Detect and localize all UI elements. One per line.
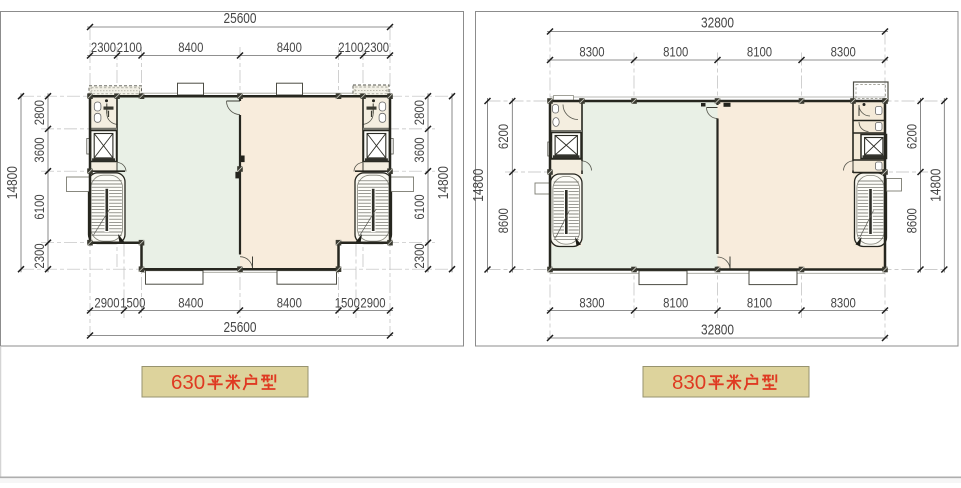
svg-text:8100: 8100	[663, 295, 688, 311]
svg-text:2900: 2900	[360, 295, 385, 311]
svg-text:8400: 8400	[277, 39, 302, 55]
svg-text:2300: 2300	[91, 39, 116, 55]
svg-text:1500: 1500	[335, 295, 360, 311]
svg-text:2800: 2800	[411, 100, 427, 125]
svg-text:14800: 14800	[470, 169, 487, 202]
svg-text:630: 630	[171, 371, 205, 394]
svg-text:8400: 8400	[178, 39, 203, 55]
svg-text:6200: 6200	[904, 124, 920, 149]
svg-text:8400: 8400	[277, 295, 302, 311]
svg-text:25600: 25600	[224, 319, 257, 336]
svg-text:1500: 1500	[120, 295, 145, 311]
svg-text:8100: 8100	[747, 44, 772, 60]
svg-text:8100: 8100	[663, 44, 688, 60]
svg-text:8300: 8300	[579, 44, 604, 60]
svg-text:3600: 3600	[411, 137, 427, 162]
svg-text:6100: 6100	[411, 194, 427, 219]
svg-text:2900: 2900	[94, 295, 119, 311]
svg-text:6200: 6200	[495, 124, 511, 149]
svg-text:6100: 6100	[31, 194, 47, 219]
svg-text:14800: 14800	[928, 169, 945, 202]
svg-text:8100: 8100	[747, 295, 772, 311]
svg-text:8300: 8300	[831, 295, 856, 311]
svg-text:830: 830	[672, 371, 706, 394]
svg-text:14800: 14800	[435, 166, 452, 199]
svg-text:3600: 3600	[31, 137, 47, 162]
svg-text:32800: 32800	[701, 322, 734, 339]
svg-text:8600: 8600	[495, 208, 511, 233]
svg-text:2800: 2800	[31, 100, 47, 125]
svg-text:8600: 8600	[904, 208, 920, 233]
svg-text:8400: 8400	[178, 295, 203, 311]
svg-text:8300: 8300	[831, 44, 856, 60]
svg-text:14800: 14800	[4, 166, 21, 199]
svg-text:32800: 32800	[701, 15, 734, 32]
svg-text:25600: 25600	[224, 10, 257, 27]
svg-text:2300: 2300	[411, 243, 427, 268]
svg-text:2100: 2100	[338, 39, 363, 55]
svg-text:2100: 2100	[117, 39, 142, 55]
svg-text:2300: 2300	[31, 243, 47, 268]
svg-text:2300: 2300	[364, 39, 389, 55]
svg-text:8300: 8300	[579, 295, 604, 311]
